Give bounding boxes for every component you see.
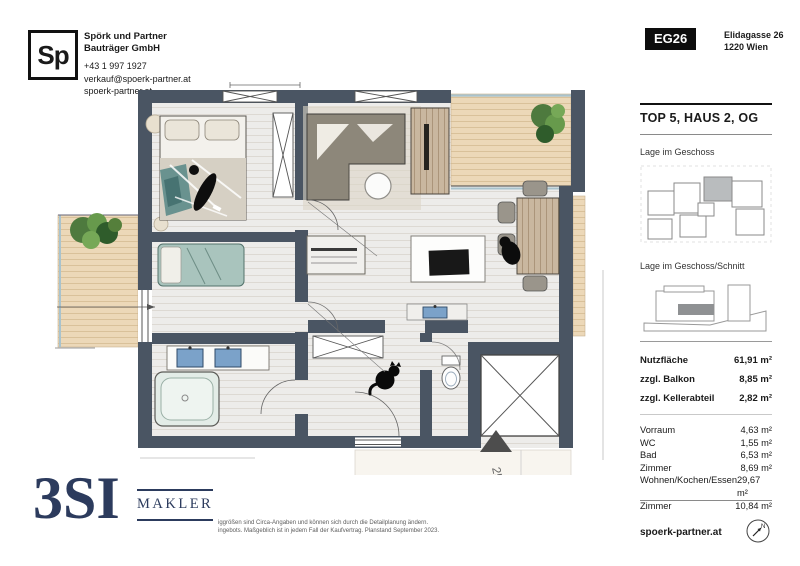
- room-value: 6,53 m²: [740, 449, 772, 462]
- divider: [640, 134, 772, 135]
- table-row: Bad 6,53 m²: [640, 449, 772, 462]
- info-sidebar: TOP 5, HAUS 2, OG Lage im Geschoss Lage …: [640, 0, 772, 566]
- room-label: Zimmer: [640, 500, 672, 513]
- kitchen-island: [307, 236, 365, 274]
- room-label: Vorraum: [640, 424, 675, 437]
- exterior-ground: [355, 450, 571, 475]
- spoerk-logo: Sp: [28, 30, 78, 80]
- sidebar-website-link[interactable]: spoerk-partner.at: [640, 527, 722, 538]
- room-value: 8,69 m²: [740, 462, 772, 475]
- unit-title: TOP 5, HAUS 2, OG: [640, 111, 758, 125]
- room-label: WC: [640, 437, 656, 450]
- floor-location-map: [640, 165, 772, 245]
- spoerk-logo-text: Sp: [37, 40, 68, 71]
- shaft: [481, 355, 559, 436]
- area-label: zzgl. Kellerabteil: [640, 389, 714, 408]
- window-top-1: [223, 91, 277, 102]
- company-name-line2: Bauträger GmbH: [84, 43, 191, 55]
- daybed: [158, 244, 244, 286]
- table-row: Wohnen/Kochen/Essen 29,67 m²: [640, 474, 772, 499]
- coffee-table: [365, 173, 391, 199]
- building-section-map: [640, 279, 772, 337]
- dining-table: [517, 198, 559, 274]
- room-value: 4,63 m²: [740, 424, 772, 437]
- disclaimer-line1: iggrößen sind Circa-Angaben und können s…: [218, 519, 439, 527]
- area-value: 61,91 m²: [734, 351, 772, 370]
- section-label: Lage im Geschoss/Schnitt: [640, 261, 745, 271]
- divider: [640, 414, 772, 415]
- room-value: 10,84 m²: [735, 500, 772, 513]
- compass-icon: N: [744, 517, 772, 545]
- kitchen-sink-counter: [407, 304, 467, 320]
- disclaimer-line2: ingebots. Maßgeblich ist in jedem Fall d…: [218, 527, 439, 535]
- company-phone: +43 1 997 1927: [84, 60, 191, 73]
- area-label: Nutzfläche: [640, 351, 688, 370]
- highlighted-floor: [678, 304, 714, 315]
- handwritten-note: 25: [489, 466, 506, 475]
- area-value: 2,82 m²: [739, 389, 772, 408]
- area-value: 8,85 m²: [739, 370, 772, 389]
- table-row: Vorraum 4,63 m²: [640, 424, 772, 437]
- room-value: 29,67 m²: [737, 474, 772, 499]
- room-list-table: Vorraum 4,63 m² WC 1,55 m² Bad 6,53 m² Z…: [640, 424, 772, 512]
- tv-sideboard: [411, 236, 485, 282]
- floorplan-drawing: 25: [55, 80, 635, 475]
- window-top-2: [355, 91, 417, 102]
- table-row: Zimmer 8,69 m²: [640, 462, 772, 475]
- terrace-strip-right: [573, 196, 585, 336]
- tv-wardrobe: [411, 108, 449, 194]
- highlighted-unit: [704, 177, 732, 201]
- broker-logo-3si: 3SI: [33, 468, 120, 528]
- svg-text:N: N: [761, 524, 765, 530]
- bed: [146, 115, 246, 231]
- area-summary-table: Nutzfläche 61,91 m² zzgl. Balkon 8,85 m²…: [640, 351, 772, 408]
- table-row: zzgl. Balkon 8,85 m²: [640, 370, 772, 389]
- location-label: Lage im Geschoss: [640, 147, 715, 157]
- table-row: Zimmer 10,84 m²: [640, 500, 772, 513]
- wardrobe-bedroom: [273, 113, 293, 197]
- divider-top: [640, 103, 772, 105]
- broker-logo-makler: MAKLER: [137, 489, 213, 521]
- bathtub: [155, 372, 219, 426]
- room-value: 1,55 m²: [740, 437, 772, 450]
- disclaimer-text: iggrößen sind Circa-Angaben und können s…: [218, 519, 439, 535]
- table-row: WC 1,55 m²: [640, 437, 772, 450]
- window-left: [138, 290, 152, 342]
- room-label: Wohnen/Kochen/Essen: [640, 474, 737, 499]
- area-label: zzgl. Balkon: [640, 370, 695, 389]
- divider: [640, 341, 772, 342]
- room-label: Bad: [640, 449, 657, 462]
- table-row: zzgl. Kellerabteil 2,82 m²: [640, 389, 772, 408]
- table-row: Nutzfläche 61,91 m²: [640, 351, 772, 370]
- company-name-line1: Spörk und Partner: [84, 31, 191, 43]
- vanity-sinks: [167, 346, 269, 370]
- divider: [640, 500, 772, 501]
- room-label: Zimmer: [640, 462, 672, 475]
